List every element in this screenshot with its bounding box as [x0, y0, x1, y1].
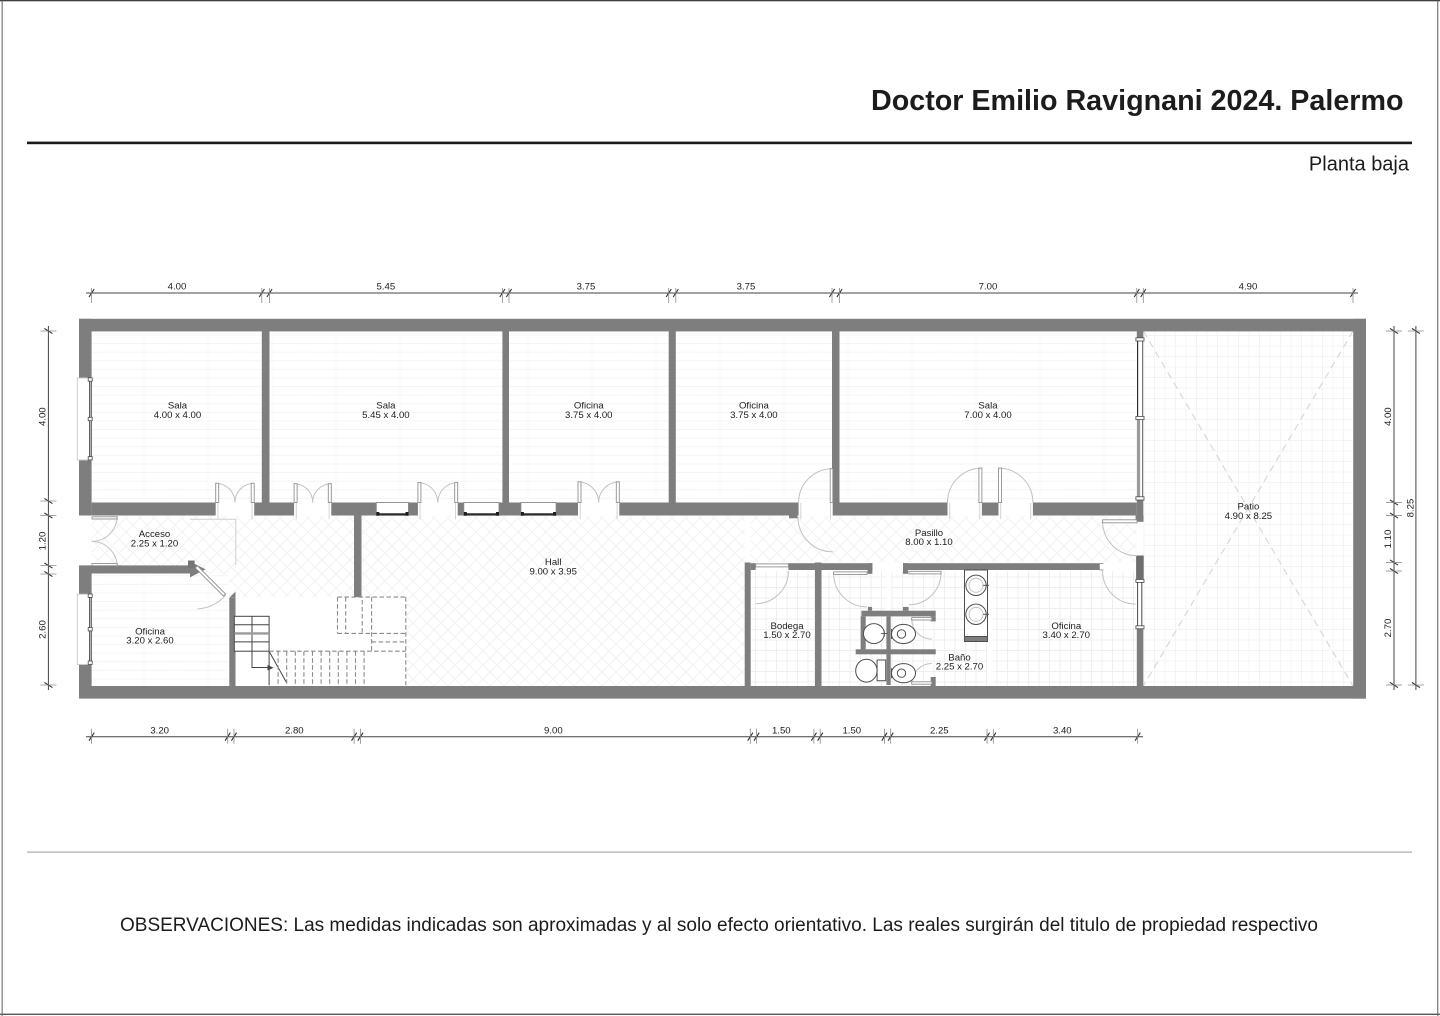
svg-text:4.90: 4.90 [1239, 281, 1258, 292]
svg-text:7.00: 7.00 [979, 281, 998, 292]
svg-text:4.90 x 8.25: 4.90 x 8.25 [1225, 511, 1272, 522]
svg-text:3.75: 3.75 [737, 281, 756, 292]
svg-text:2.25: 2.25 [930, 725, 949, 736]
svg-text:9.00: 9.00 [544, 725, 563, 736]
svg-text:4.00: 4.00 [168, 281, 187, 292]
svg-text:4.00 x 4.00: 4.00 x 4.00 [154, 410, 201, 421]
svg-text:7.00 x 4.00: 7.00 x 4.00 [964, 410, 1011, 421]
svg-text:3.75 x 4.00: 3.75 x 4.00 [730, 410, 777, 421]
svg-text:8.25: 8.25 [1405, 499, 1416, 518]
svg-text:4.00: 4.00 [1383, 407, 1394, 426]
svg-text:3.75: 3.75 [577, 281, 596, 292]
svg-text:4.00: 4.00 [38, 407, 49, 426]
svg-text:3.20: 3.20 [150, 725, 169, 736]
svg-text:1.50 x 2.70: 1.50 x 2.70 [763, 630, 810, 641]
svg-text:2.25 x 1.20: 2.25 x 1.20 [131, 538, 178, 549]
svg-text:8.00 x 1.10: 8.00 x 1.10 [905, 537, 952, 548]
svg-text:3.40: 3.40 [1053, 725, 1072, 736]
svg-text:2.60: 2.60 [38, 620, 49, 639]
svg-text:3.75 x 4.00: 3.75 x 4.00 [565, 410, 612, 421]
svg-text:2.70: 2.70 [1383, 619, 1394, 638]
svg-text:Doctor Emilio Ravignani 2024.: Doctor Emilio Ravignani 2024. Palermo [871, 85, 1403, 117]
svg-text:2.80: 2.80 [285, 725, 304, 736]
svg-text:2.25 x 2.70: 2.25 x 2.70 [936, 662, 983, 673]
svg-text:3.40 x 2.70: 3.40 x 2.70 [1043, 630, 1090, 641]
svg-text:1.50: 1.50 [772, 725, 791, 736]
svg-text:9.00 x 3.95: 9.00 x 3.95 [529, 567, 576, 578]
svg-text:Planta baja: Planta baja [1309, 154, 1410, 176]
svg-text:5.45 x 4.00: 5.45 x 4.00 [362, 410, 409, 421]
svg-text:3.20 x 2.60: 3.20 x 2.60 [126, 636, 173, 647]
svg-text:1.10: 1.10 [1383, 530, 1394, 549]
svg-text:5.45: 5.45 [377, 281, 396, 292]
svg-text:1.20: 1.20 [38, 532, 49, 551]
svg-text:OBSERVACIONES: Las medidas ind: OBSERVACIONES: Las medidas indicadas son… [120, 915, 1318, 936]
svg-text:1.50: 1.50 [842, 725, 861, 736]
